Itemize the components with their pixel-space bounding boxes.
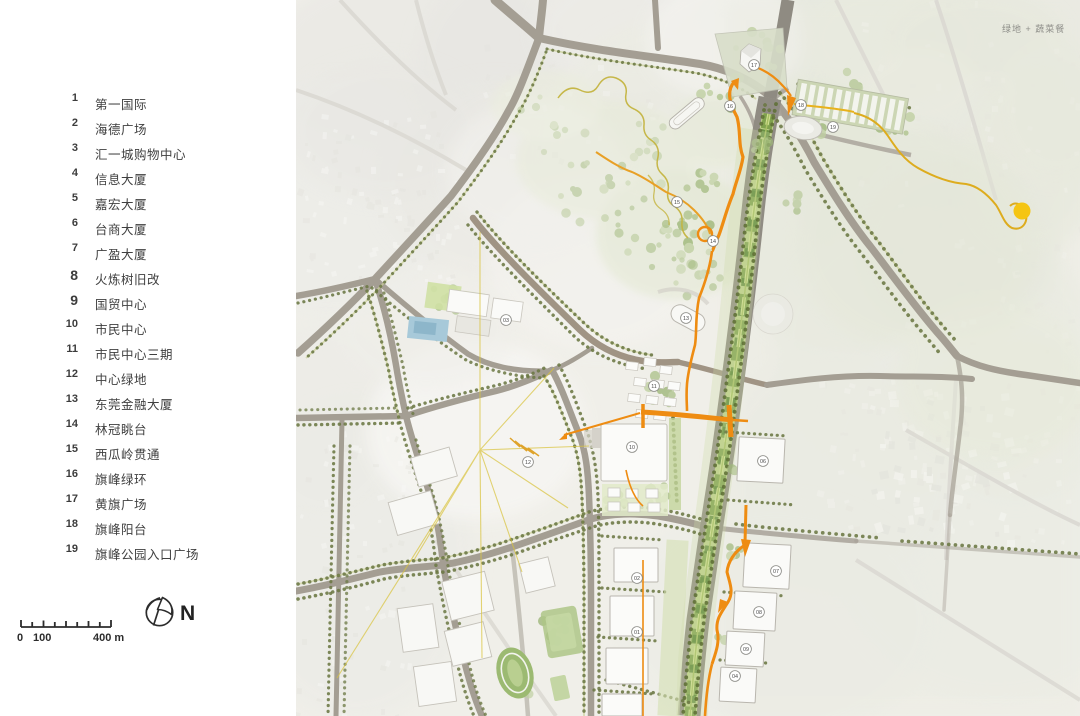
svg-text:400 m: 400 m [93, 632, 124, 644]
svg-text:13: 13 [683, 316, 689, 322]
svg-text:100: 100 [33, 632, 51, 644]
svg-text:15: 15 [674, 200, 680, 206]
svg-text:11: 11 [651, 384, 657, 390]
svg-text:02: 02 [634, 576, 640, 582]
svg-text:04: 04 [732, 674, 738, 680]
svg-text:0: 0 [17, 632, 23, 644]
svg-text:08: 08 [756, 610, 762, 616]
svg-text:01: 01 [634, 630, 640, 636]
svg-text:N: N [180, 602, 195, 625]
svg-text:09: 09 [743, 647, 749, 653]
svg-text:绿地 + 蔬菜餐: 绿地 + 蔬菜餐 [1002, 23, 1065, 34]
svg-text:19: 19 [830, 125, 836, 131]
svg-text:14: 14 [710, 239, 716, 245]
svg-text:16: 16 [727, 104, 733, 110]
svg-text:12: 12 [525, 460, 531, 466]
svg-text:07: 07 [773, 569, 779, 575]
svg-text:06: 06 [760, 459, 766, 465]
svg-text:03: 03 [503, 318, 509, 324]
svg-text:10: 10 [629, 445, 635, 451]
svg-text:18: 18 [798, 103, 804, 109]
svg-text:17: 17 [751, 63, 757, 69]
